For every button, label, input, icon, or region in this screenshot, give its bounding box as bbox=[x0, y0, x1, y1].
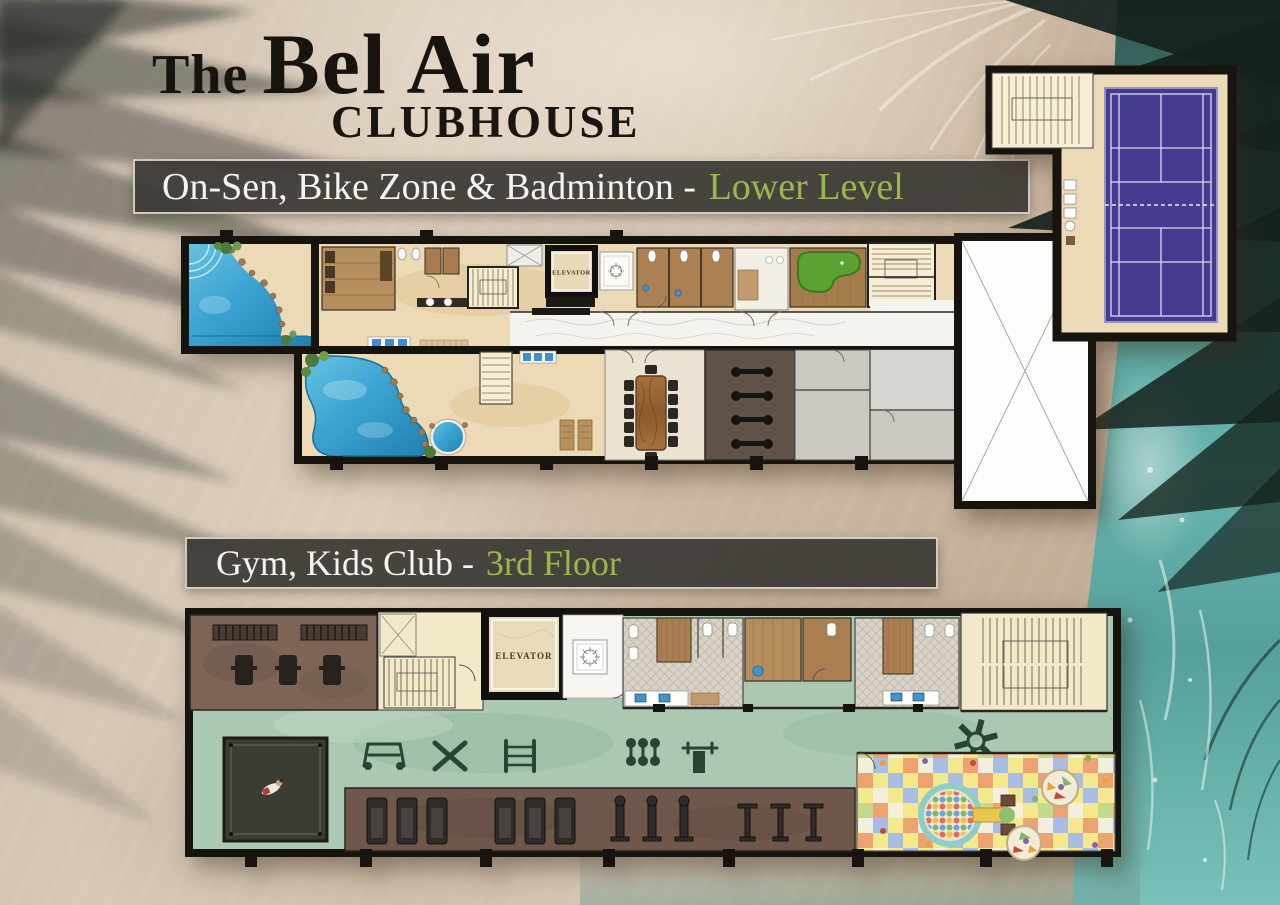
banner-third-floor-highlight: 3rd Floor bbox=[486, 542, 621, 584]
stairs-left bbox=[378, 612, 483, 710]
badminton-stairs bbox=[992, 73, 1093, 148]
stairs-row1-right bbox=[868, 243, 935, 307]
lobby-compass bbox=[563, 615, 627, 698]
badminton-court bbox=[1105, 88, 1217, 322]
cardio-row bbox=[345, 788, 855, 851]
elevator-lower: ELEVATOR bbox=[485, 613, 563, 696]
weight-benches bbox=[231, 655, 345, 685]
stairs-right bbox=[961, 613, 1107, 711]
weights-room bbox=[190, 615, 377, 710]
floor-plan-third-floor: ELEVATOR bbox=[183, 593, 1128, 903]
compass-lobby-icon bbox=[600, 252, 633, 290]
elevator-label-upper: ELEVATOR bbox=[552, 270, 591, 277]
elevator-upper: ELEVATOR bbox=[546, 248, 595, 307]
kids-table-1 bbox=[1042, 770, 1078, 806]
kids-slide bbox=[973, 808, 1003, 822]
clubhouse-poster: The Bel Air CLUBHOUSE On-Sen, Bike Zone … bbox=[0, 0, 1280, 905]
utility-rooms bbox=[795, 350, 958, 460]
floor-plan-lower-level: ELEVATOR bbox=[180, 60, 1240, 512]
banner-third-floor: Gym, Kids Club - 3rd Floor bbox=[185, 537, 938, 589]
wc-block bbox=[637, 248, 733, 307]
spin-bikes bbox=[611, 796, 693, 841]
dumbbell-stand-icon bbox=[628, 740, 659, 765]
elevator-label-lower: ELEVATOR bbox=[495, 651, 552, 661]
shower-room bbox=[735, 248, 788, 310]
onsen-pool-block bbox=[185, 240, 315, 350]
sparring-mat bbox=[224, 738, 327, 841]
putting-green-room bbox=[790, 248, 866, 307]
row2-pool-meeting-bike-band bbox=[298, 350, 958, 461]
banner-third-floor-label: Gym, Kids Club - bbox=[216, 542, 474, 584]
row1-onsen-locker-band: ELEVATOR bbox=[260, 240, 958, 350]
locker-room bbox=[322, 247, 395, 310]
kids-club bbox=[857, 753, 1115, 860]
meeting-room bbox=[605, 350, 705, 461]
kids-table-2 bbox=[1007, 826, 1041, 860]
stairs-row1 bbox=[468, 267, 518, 308]
service-shaft bbox=[507, 245, 542, 266]
bike-zone bbox=[705, 350, 795, 460]
